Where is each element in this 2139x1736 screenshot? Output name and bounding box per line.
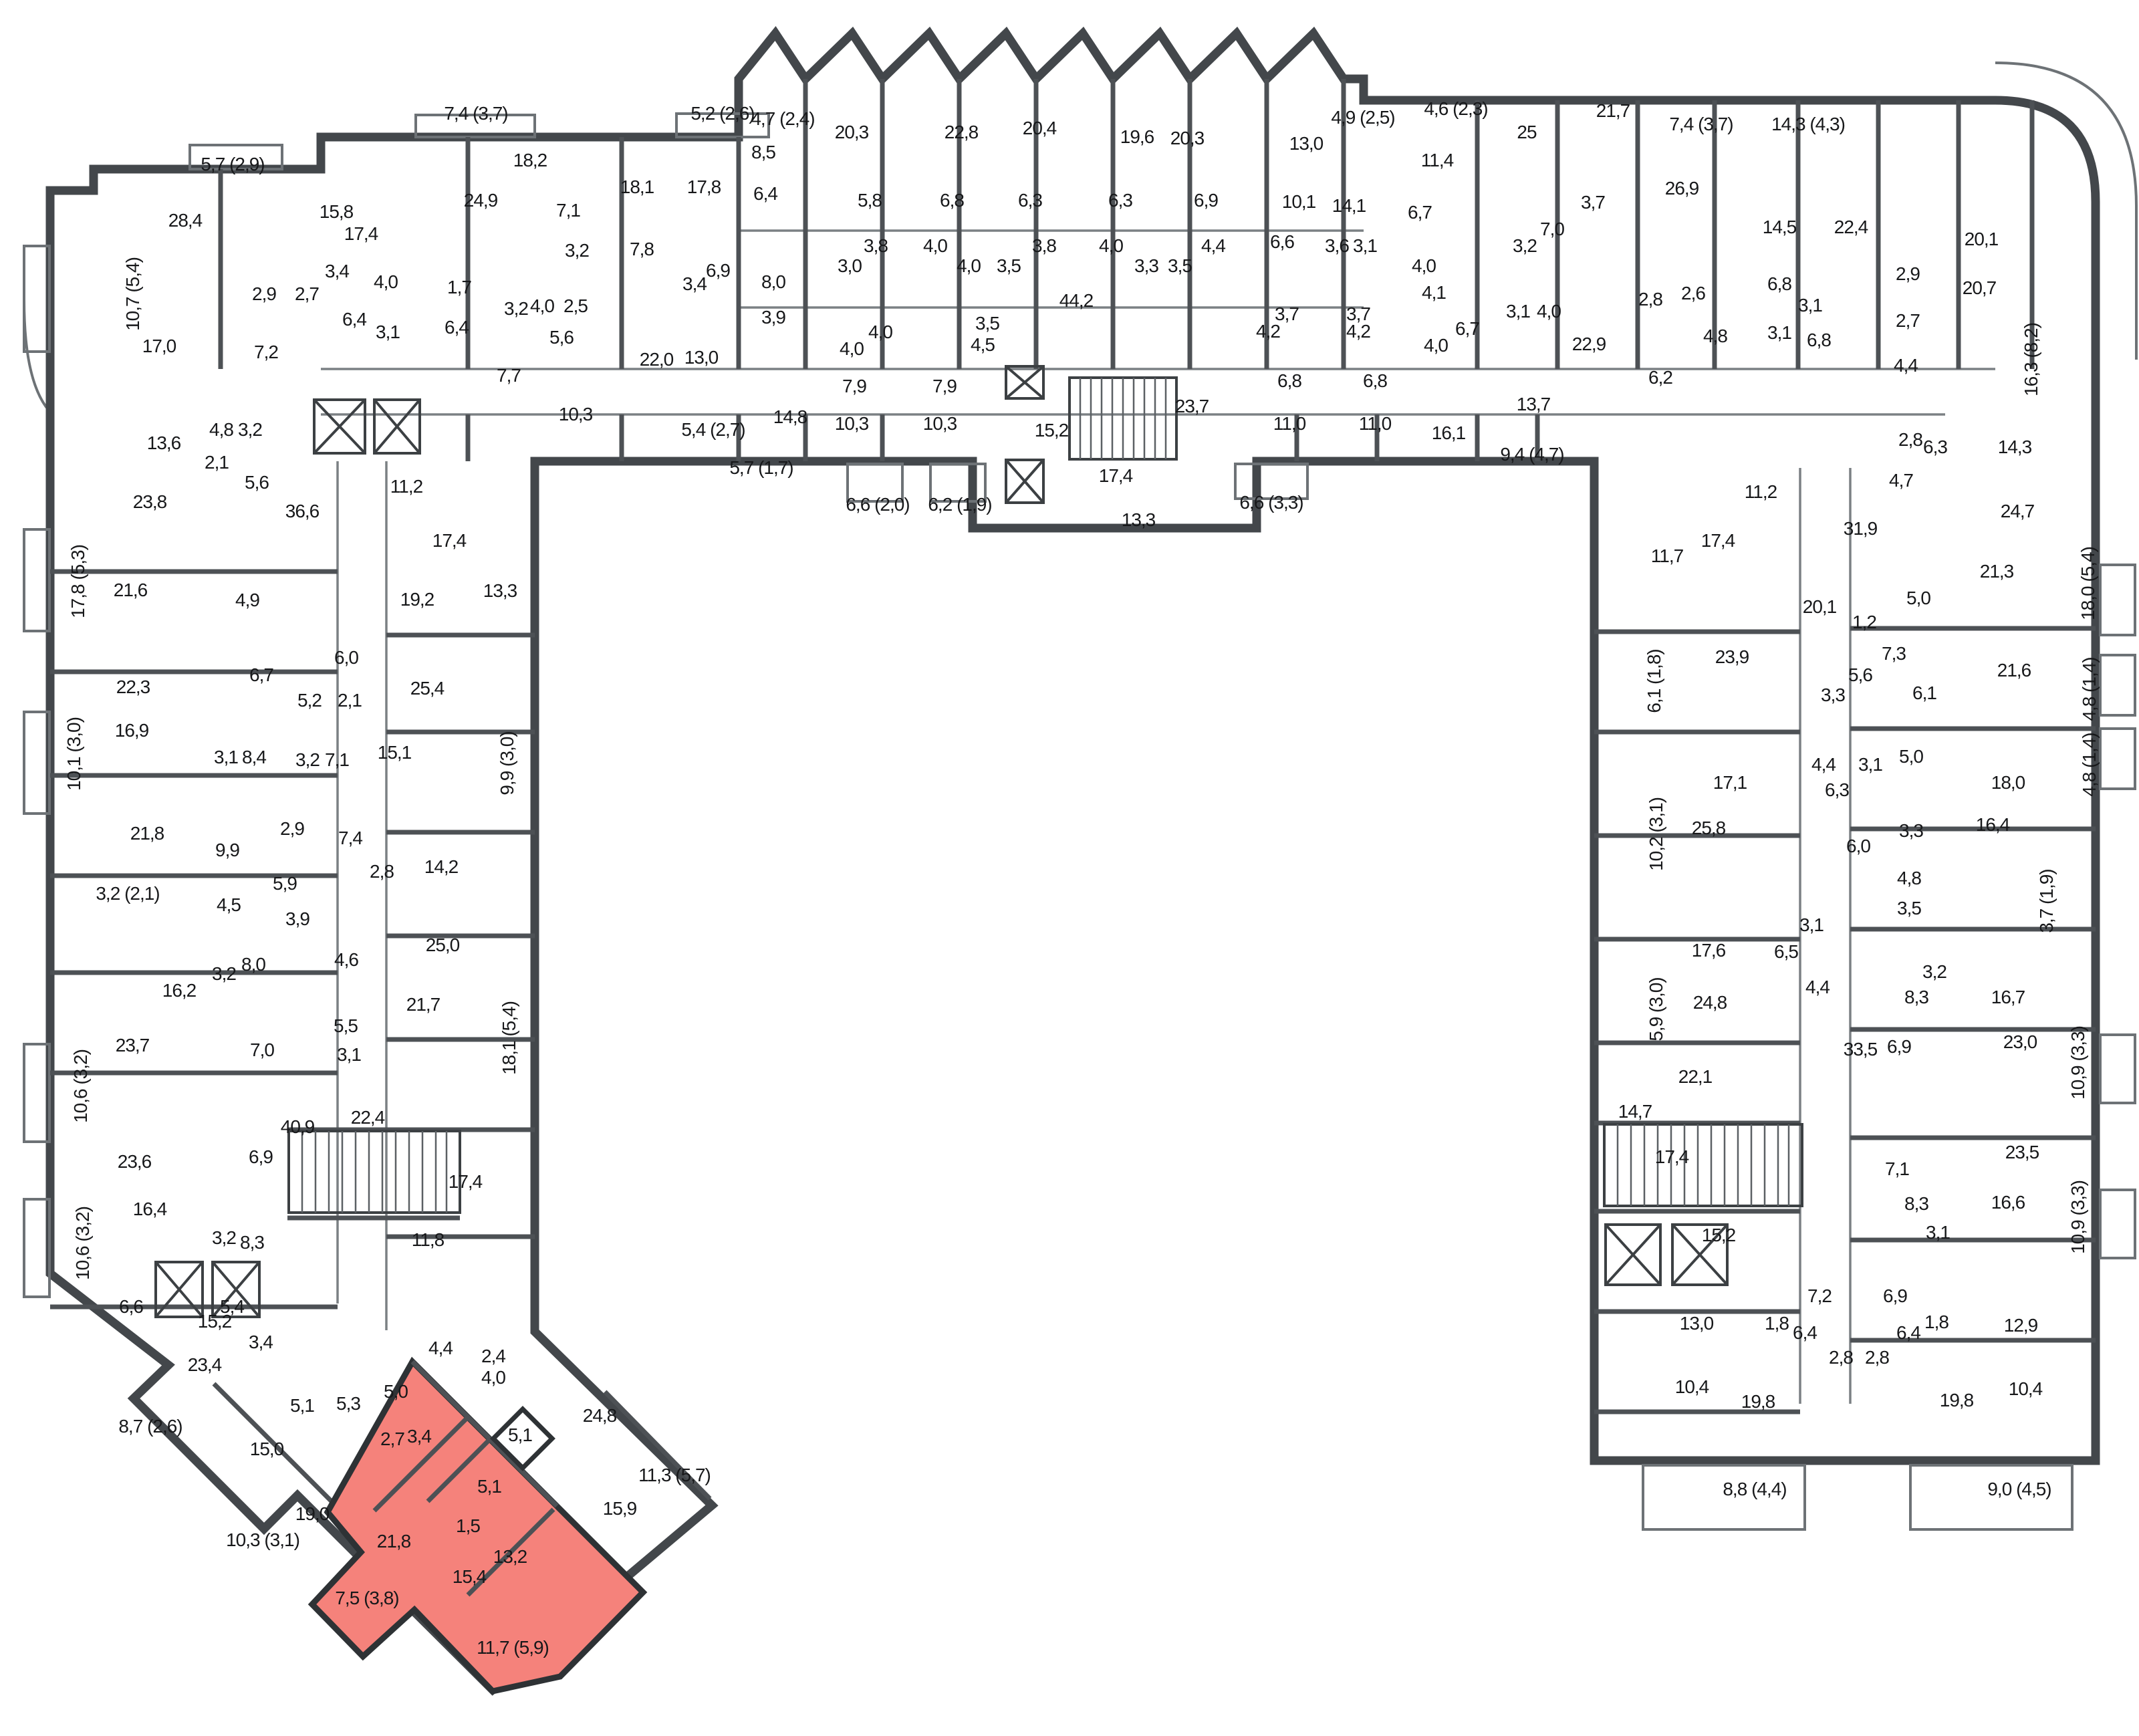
room-area-label: 14,5 (1763, 218, 1797, 237)
room-area-label: 4,8 (1703, 327, 1727, 346)
room-area-label: 16,3 (8,2) (2022, 323, 2041, 396)
room-area-label: 3,1 (1799, 916, 1823, 935)
room-area-label: 13,3 (483, 582, 517, 600)
room-area-label: 3,9 (761, 308, 785, 327)
room-area-label: 5,9 (3,0) (1647, 977, 1666, 1041)
room-area-label: 2,4 (481, 1347, 505, 1366)
room-area-label: 7,1 (1885, 1160, 1909, 1179)
room-area-label: 23,8 (133, 493, 167, 511)
room-area-label: 4,0 (374, 273, 398, 291)
room-area-label: 5,8 (858, 191, 882, 210)
room-area-label: 13,7 (1517, 395, 1551, 414)
room-area-label: 2,7 (295, 285, 319, 303)
room-area-label: 21,6 (114, 581, 148, 600)
room-area-label: 7,0 (1540, 220, 1564, 239)
room-area-label: 7,2 (254, 343, 278, 362)
room-area-label: 3,5 (975, 314, 999, 333)
floor-plan: 5,7 (2,9)7,4 (3,7)28,415,817,424,918,218… (0, 0, 2139, 1736)
room-area-label: 3,2 (238, 420, 262, 439)
room-area-label: 4,9 (2,5) (1331, 108, 1394, 127)
room-area-label: 3,5 (1168, 257, 1192, 275)
balcony-left-1 (24, 246, 49, 352)
room-area-label: 10,6 (3,2) (72, 1049, 90, 1123)
room-area-label: 16,9 (115, 721, 149, 740)
room-area-label: 22,8 (945, 123, 979, 142)
room-area-label: 14,7 (1618, 1102, 1652, 1121)
balcony-left-5 (24, 1199, 49, 1297)
room-area-label: 22,4 (351, 1108, 385, 1127)
room-area-label: 16,1 (1432, 424, 1466, 443)
room-area-label: 16,2 (162, 981, 197, 1000)
room-area-label: 7,9 (842, 377, 866, 396)
room-area-label: 9,9 (215, 841, 239, 860)
balcony-right-4 (2100, 1035, 2135, 1103)
room-area-label: 6,3 (1018, 191, 1042, 210)
room-area-label: 4,0 (923, 237, 947, 255)
room-area-label: 3,5 (997, 257, 1021, 275)
room-area-label: 17,4 (449, 1172, 483, 1191)
room-area-label: 22,9 (1572, 335, 1606, 354)
room-area-label: 21,8 (377, 1532, 411, 1551)
room-area-label: 18,0 (1991, 773, 2025, 792)
room-area-label: 15,2 (1702, 1226, 1736, 1245)
room-area-label: 7,3 (1882, 644, 1906, 663)
room-area-label: 9,4 (4,7) (1500, 445, 1563, 464)
room-area-label: 2,7 (1896, 312, 1920, 330)
room-area-label: 21,3 (1980, 562, 2014, 581)
room-area-label: 3,4 (249, 1333, 273, 1352)
room-area-label: 4,6 (2,3) (1424, 100, 1487, 118)
room-area-label: 21,8 (130, 824, 164, 843)
room-area-label: 4,7 (1889, 471, 1913, 490)
room-area-label: 4,0 (1099, 237, 1123, 255)
room-area-label: 6,1 (1,8) (1645, 649, 1664, 713)
room-area-label: 8,3 (1904, 988, 1928, 1007)
room-area-label: 17,4 (1099, 467, 1133, 485)
room-area-label: 6,4 (753, 184, 777, 203)
room-area-label: 17,4 (344, 225, 378, 243)
room-area-label: 4,8 (209, 420, 233, 439)
room-area-label: 3,3 (1821, 686, 1845, 705)
room-area-label: 2,8 (1829, 1348, 1853, 1367)
room-area-label: 3,1 (1767, 324, 1791, 342)
room-area-label: 10,3 (835, 414, 869, 433)
room-area-label: 4,4 (1201, 237, 1225, 255)
room-area-label: 3,1 (376, 323, 400, 342)
room-area-label: 33,5 (1844, 1040, 1878, 1059)
room-area-label: 2,5 (563, 297, 588, 316)
room-area-label: 3,2 (212, 1229, 236, 1247)
room-area-label: 5,4 (220, 1297, 244, 1316)
room-area-label: 13,2 (493, 1547, 527, 1566)
room-area-label: 6,8 (1277, 372, 1301, 390)
room-area-label: 4,4 (1811, 755, 1836, 774)
room-area-label: 31,9 (1844, 519, 1878, 538)
room-area-label: 22,4 (1834, 218, 1868, 237)
room-area-label: 14,1 (1332, 197, 1366, 215)
room-area-label: 28,4 (168, 211, 203, 230)
room-area-label: 10,9 (3,3) (2069, 1181, 2088, 1254)
room-area-label: 3,0 (838, 257, 862, 275)
room-area-label: 5,5 (334, 1017, 358, 1035)
room-area-label: 6,4 (1896, 1324, 1920, 1342)
room-area-label: 6,0 (334, 648, 358, 667)
room-area-label: 4,4 (428, 1339, 453, 1358)
room-area-label: 7,1 (325, 751, 349, 769)
room-area-label: 8,3 (1904, 1195, 1928, 1213)
room-area-label: 17,1 (1713, 773, 1747, 792)
room-area-label: 6,9 (1887, 1037, 1911, 1056)
room-area-label: 6,6 (119, 1297, 143, 1316)
room-area-label: 17,4 (1701, 531, 1735, 550)
room-area-label: 11,2 (390, 477, 422, 496)
room-area-label: 7,2 (1807, 1287, 1832, 1306)
room-area-label: 1,8 (1765, 1314, 1789, 1333)
room-area-label: 23,7 (1175, 397, 1209, 416)
room-area-label: 4,0 (530, 297, 554, 316)
room-area-label: 17,6 (1692, 941, 1726, 960)
room-area-label: 3,6 (1325, 237, 1349, 255)
room-area-label: 2,6 (1681, 284, 1705, 303)
room-area-label: 16,4 (1976, 816, 2010, 834)
room-area-label: 40,9 (281, 1118, 315, 1136)
room-area-label: 6,2 (1648, 368, 1672, 387)
room-area-label: 17,4 (432, 531, 467, 550)
room-area-label: 3,2 (2,1) (96, 884, 159, 903)
room-area-label: 3,2 (504, 299, 528, 318)
room-area-label: 3,3 (1134, 257, 1158, 275)
room-area-label: 3,4 (325, 262, 349, 281)
room-area-label: 7,1 (556, 201, 580, 220)
room-area-label: 6,3 (1923, 438, 1947, 457)
room-area-label: 6,2 (1,9) (928, 495, 991, 514)
room-area-label: 24,8 (583, 1406, 617, 1425)
room-area-label: 11,8 (412, 1231, 444, 1249)
room-area-label: 4,0 (840, 340, 864, 358)
room-area-label: 19,8 (1741, 1392, 1775, 1411)
room-area-label: 6,6 (1270, 233, 1294, 251)
balcony-right-5 (2100, 1190, 2135, 1258)
room-area-label: 6,3 (1108, 191, 1132, 210)
room-area-label: 5,7 (2,9) (201, 155, 264, 174)
room-area-label: 19,8 (1940, 1391, 1974, 1410)
room-area-label: 16,4 (133, 1200, 167, 1219)
room-area-label: 24,8 (1693, 993, 1727, 1012)
room-area-label: 20,3 (835, 123, 869, 142)
room-area-label: 13,0 (684, 348, 719, 367)
room-area-label: 3,2 (1922, 963, 1946, 981)
room-area-label: 8,5 (751, 143, 775, 162)
room-area-label: 3,3 (1899, 822, 1923, 840)
room-area-label: 16,7 (1991, 988, 2025, 1007)
room-area-label: 2,1 (338, 691, 362, 710)
room-area-label: 10,1 (3,0) (65, 717, 84, 791)
room-area-label: 3,8 (864, 237, 888, 255)
room-area-label: 4,2 (1346, 322, 1370, 341)
room-area-label: 11,4 (1421, 151, 1453, 170)
room-area-label: 10,4 (2009, 1380, 2043, 1398)
room-area-label: 6,3 (1825, 781, 1849, 799)
room-area-label: 3,7 (1581, 193, 1605, 212)
room-area-label: 3,2 (565, 241, 589, 260)
room-area-label: 3,8 (1032, 237, 1056, 255)
room-area-label: 15,0 (250, 1440, 284, 1459)
room-area-label: 17,8 (5,3) (69, 545, 88, 618)
room-area-label: 10,4 (1675, 1378, 1709, 1396)
room-area-label: 13,6 (147, 434, 181, 453)
room-area-label: 6,8 (1363, 372, 1387, 390)
room-area-label: 23,7 (116, 1036, 150, 1055)
room-area-label: 15,1 (378, 743, 412, 762)
room-area-label: 3,1 (1858, 755, 1882, 774)
room-area-label: 4,0 (868, 323, 892, 342)
room-area-label: 11,7 (1651, 547, 1683, 566)
room-area-label: 1,5 (456, 1517, 480, 1535)
room-area-label: 4,9 (235, 591, 259, 610)
room-area-label: 3,7 (1,9) (2037, 869, 2056, 933)
room-area-label: 4,1 (1422, 283, 1446, 302)
room-area-label: 24,7 (2001, 502, 2035, 521)
room-area-label: 44,2 (1059, 291, 1094, 310)
room-area-label: 24,9 (464, 191, 498, 210)
room-area-label: 5,3 (336, 1394, 360, 1413)
room-area-label: 14,3 (1998, 438, 2032, 457)
room-area-label: 10,1 (1282, 193, 1316, 211)
room-area-label: 6,5 (1774, 943, 1798, 961)
room-area-label: 10,6 (3,2) (74, 1207, 92, 1280)
room-area-label: 5,0 (1906, 589, 1930, 608)
floor-plan-drawing (0, 0, 2139, 1736)
room-area-label: 21,6 (1997, 661, 2031, 680)
room-area-label: 10,9 (3,3) (2069, 1026, 2088, 1100)
room-area-label: 3,1 (1353, 237, 1377, 255)
room-area-label: 6,1 (1912, 684, 1936, 703)
room-area-label: 2,9 (280, 820, 304, 838)
room-area-label: 25,0 (426, 936, 460, 955)
room-area-label: 5,1 (477, 1477, 501, 1496)
room-area-label: 5,0 (1899, 747, 1923, 766)
room-area-label: 7,4 (3,7) (1669, 115, 1733, 134)
room-area-label: 11,0 (1273, 414, 1305, 433)
room-area-label: 13,0 (1680, 1314, 1714, 1333)
room-area-label: 4,8 (1897, 869, 1921, 888)
room-area-label: 8,8 (4,4) (1723, 1480, 1786, 1499)
room-area-label: 4,5 (217, 896, 241, 914)
room-area-label: 6,9 (249, 1148, 273, 1166)
room-area-label: 4,2 (1256, 322, 1280, 341)
room-area-label: 14,3 (4,3) (1771, 115, 1845, 134)
room-area-label: 26,9 (1665, 179, 1699, 198)
room-area-label: 17,8 (687, 178, 721, 197)
room-area-label: 3,5 (1897, 899, 1921, 918)
room-area-label: 5,6 (1848, 666, 1872, 685)
room-area-label: 7,5 (3,8) (335, 1589, 398, 1608)
room-area-label: 4,0 (1412, 257, 1436, 275)
room-area-label: 20,4 (1023, 119, 1057, 138)
room-area-label: 9,0 (4,5) (1987, 1480, 2051, 1499)
room-area-label: 15,9 (603, 1499, 637, 1518)
room-area-label: 2,8 (1898, 430, 1922, 449)
room-area-label: 20,1 (1803, 598, 1837, 616)
room-area-label: 6,9 (1194, 191, 1218, 210)
room-area-label: 7,4 (338, 829, 362, 848)
room-area-label: 20,3 (1170, 129, 1205, 148)
room-area-label: 16,6 (1991, 1193, 2025, 1212)
balcony-left-3 (24, 712, 49, 814)
room-area-label: 36,6 (285, 502, 320, 521)
room-area-label: 7,0 (250, 1041, 274, 1060)
balcony-right-1 (2100, 565, 2135, 635)
room-area-label: 25,4 (410, 679, 445, 698)
room-area-label: 1,7 (447, 278, 471, 297)
room-area-label: 3,1 (1506, 302, 1530, 321)
room-area-label: 5,2 (297, 691, 322, 710)
room-area-label: 20,1 (1965, 230, 1999, 249)
room-area-label: 21,7 (406, 995, 441, 1014)
room-area-label: 3,4 (682, 275, 707, 293)
room-area-label: 8,4 (242, 748, 266, 767)
room-area-label: 6,7 (1408, 203, 1432, 222)
room-area-label: 23,9 (1715, 648, 1749, 666)
room-area-label: 22,3 (116, 678, 150, 697)
room-area-label: 15,2 (1035, 421, 1069, 440)
room-area-label: 6,8 (1807, 331, 1831, 350)
room-area-label: 6,6 (2,0) (846, 495, 909, 514)
room-area-label: 4,0 (481, 1368, 505, 1387)
room-area-label: 4,4 (1894, 356, 1918, 375)
room-area-label: 3,1 (1926, 1223, 1950, 1242)
room-area-label: 4,7 (2,4) (751, 110, 814, 128)
room-area-label: 1,8 (1924, 1313, 1948, 1332)
room-area-label: 11,7 (5,9) (477, 1638, 549, 1657)
room-area-label: 4,0 (1537, 302, 1561, 321)
room-area-label: 10,2 (3,1) (1647, 797, 1666, 871)
room-area-label: 6,9 (1883, 1287, 1907, 1306)
room-area-label: 25 (1517, 123, 1536, 142)
room-area-label: 4,4 (1805, 978, 1830, 997)
room-area-label: 4,6 (334, 951, 358, 969)
room-area-label: 7,7 (497, 366, 521, 385)
room-area-label: 10,7 (5,4) (124, 257, 142, 331)
room-area-label: 10,3 (923, 414, 957, 433)
room-area-label: 5,2 (2,6) (690, 104, 754, 123)
room-area-label: 20,7 (1963, 279, 1997, 297)
room-area-label: 22,0 (640, 350, 674, 369)
room-area-label: 2,7 (380, 1430, 404, 1449)
room-area-label: 4,8 (1,4) (2080, 657, 2099, 721)
room-area-label: 12,9 (2004, 1316, 2038, 1335)
room-area-label: 5,0 (384, 1382, 408, 1401)
room-area-label: 3,2 (212, 965, 236, 983)
room-area-label: 3,2 (295, 751, 320, 769)
room-area-label: 6,0 (1846, 837, 1870, 856)
room-area-label: 15,4 (453, 1568, 487, 1586)
room-area-label: 5,4 (2,7) (681, 420, 745, 439)
balcony-left-2 (24, 529, 49, 631)
balcony-right-3 (2100, 729, 2135, 789)
room-area-label: 14,8 (773, 408, 807, 426)
room-area-label: 17,0 (142, 337, 176, 356)
room-area-label: 2,8 (1638, 290, 1662, 309)
room-area-label: 22,1 (1678, 1068, 1713, 1086)
room-area-label: 3,4 (407, 1427, 431, 1446)
room-area-label: 23,5 (2005, 1143, 2039, 1162)
room-area-label: 11,2 (1745, 483, 1777, 501)
room-area-label: 25,8 (1692, 819, 1726, 838)
room-area-label: 3,1 (337, 1045, 361, 1064)
room-area-label: 3,1 (214, 748, 238, 767)
room-area-label: 8,7 (2,6) (118, 1417, 182, 1436)
room-area-label: 8,0 (241, 955, 265, 974)
room-area-label: 5,1 (508, 1426, 532, 1445)
room-area-label: 6,7 (1455, 320, 1479, 338)
room-area-label: 6,8 (940, 191, 964, 210)
room-area-label: 19,6 (1120, 128, 1154, 146)
room-area-label: 23,0 (2003, 1033, 2037, 1051)
room-area-label: 2,8 (1865, 1348, 1889, 1367)
room-area-label: 6,9 (706, 261, 730, 280)
balcony-right-2 (2100, 655, 2135, 715)
room-area-label: 17,4 (1655, 1148, 1689, 1166)
room-area-label: 15,8 (320, 203, 354, 221)
room-area-label: 19,2 (400, 590, 434, 609)
room-area-label: 7,9 (932, 377, 957, 396)
room-area-label: 14,2 (424, 858, 459, 876)
room-area-label: 7,8 (630, 240, 654, 259)
room-area-label: 3,9 (285, 910, 309, 928)
room-area-label: 5,6 (245, 473, 269, 492)
room-area-label: 6,6 (3,3) (1239, 493, 1303, 512)
room-area-label: 5,9 (273, 874, 297, 893)
room-area-label: 4,8 (1,4) (2080, 733, 2099, 796)
room-area-label: 18,0 (5,4) (2079, 547, 2098, 620)
room-area-label: 2,9 (1896, 265, 1920, 283)
room-area-label: 5,1 (290, 1396, 314, 1415)
room-area-label: 6,4 (342, 310, 366, 329)
room-area-label: 8,3 (240, 1233, 264, 1252)
room-area-label: 2,1 (205, 453, 229, 472)
room-area-label: 10,3 (3,1) (226, 1531, 299, 1549)
room-area-label: 8,0 (761, 273, 785, 291)
room-area-label: 4,5 (971, 336, 995, 354)
room-area-label: 6,8 (1767, 275, 1791, 293)
room-area-label: 18,2 (513, 151, 547, 170)
room-area-label: 6,4 (1793, 1324, 1817, 1342)
room-area-label: 18,1 (620, 178, 654, 197)
room-area-label: 10,3 (559, 405, 593, 424)
room-area-label: 23,4 (188, 1356, 222, 1374)
room-area-label: 18,1 (5,4) (500, 1001, 519, 1075)
room-area-label: 6,7 (249, 666, 273, 685)
room-area-label: 5,7 (1,7) (729, 459, 793, 477)
room-area-label: 13,3 (1122, 511, 1156, 529)
room-area-label: 9,9 (3,0) (498, 731, 517, 795)
room-area-label: 4,0 (1424, 336, 1448, 355)
room-area-label: 6,4 (445, 318, 469, 337)
room-area-label: 11,0 (1359, 414, 1391, 433)
room-area-label: 11,3 (5,7) (638, 1466, 711, 1485)
room-area-label: 19,0 (295, 1505, 330, 1523)
room-area-label: 3,1 (1798, 296, 1822, 315)
room-area-label: 4,0 (957, 257, 981, 275)
room-area-label: 2,8 (370, 862, 394, 881)
balcony-left-4 (24, 1044, 49, 1142)
room-area-label: 13,0 (1289, 134, 1324, 153)
room-area-label: 5,6 (549, 328, 574, 347)
room-area-label: 21,7 (1596, 102, 1630, 120)
room-area-label: 3,2 (1513, 237, 1537, 255)
room-area-label: 2,9 (252, 285, 276, 303)
